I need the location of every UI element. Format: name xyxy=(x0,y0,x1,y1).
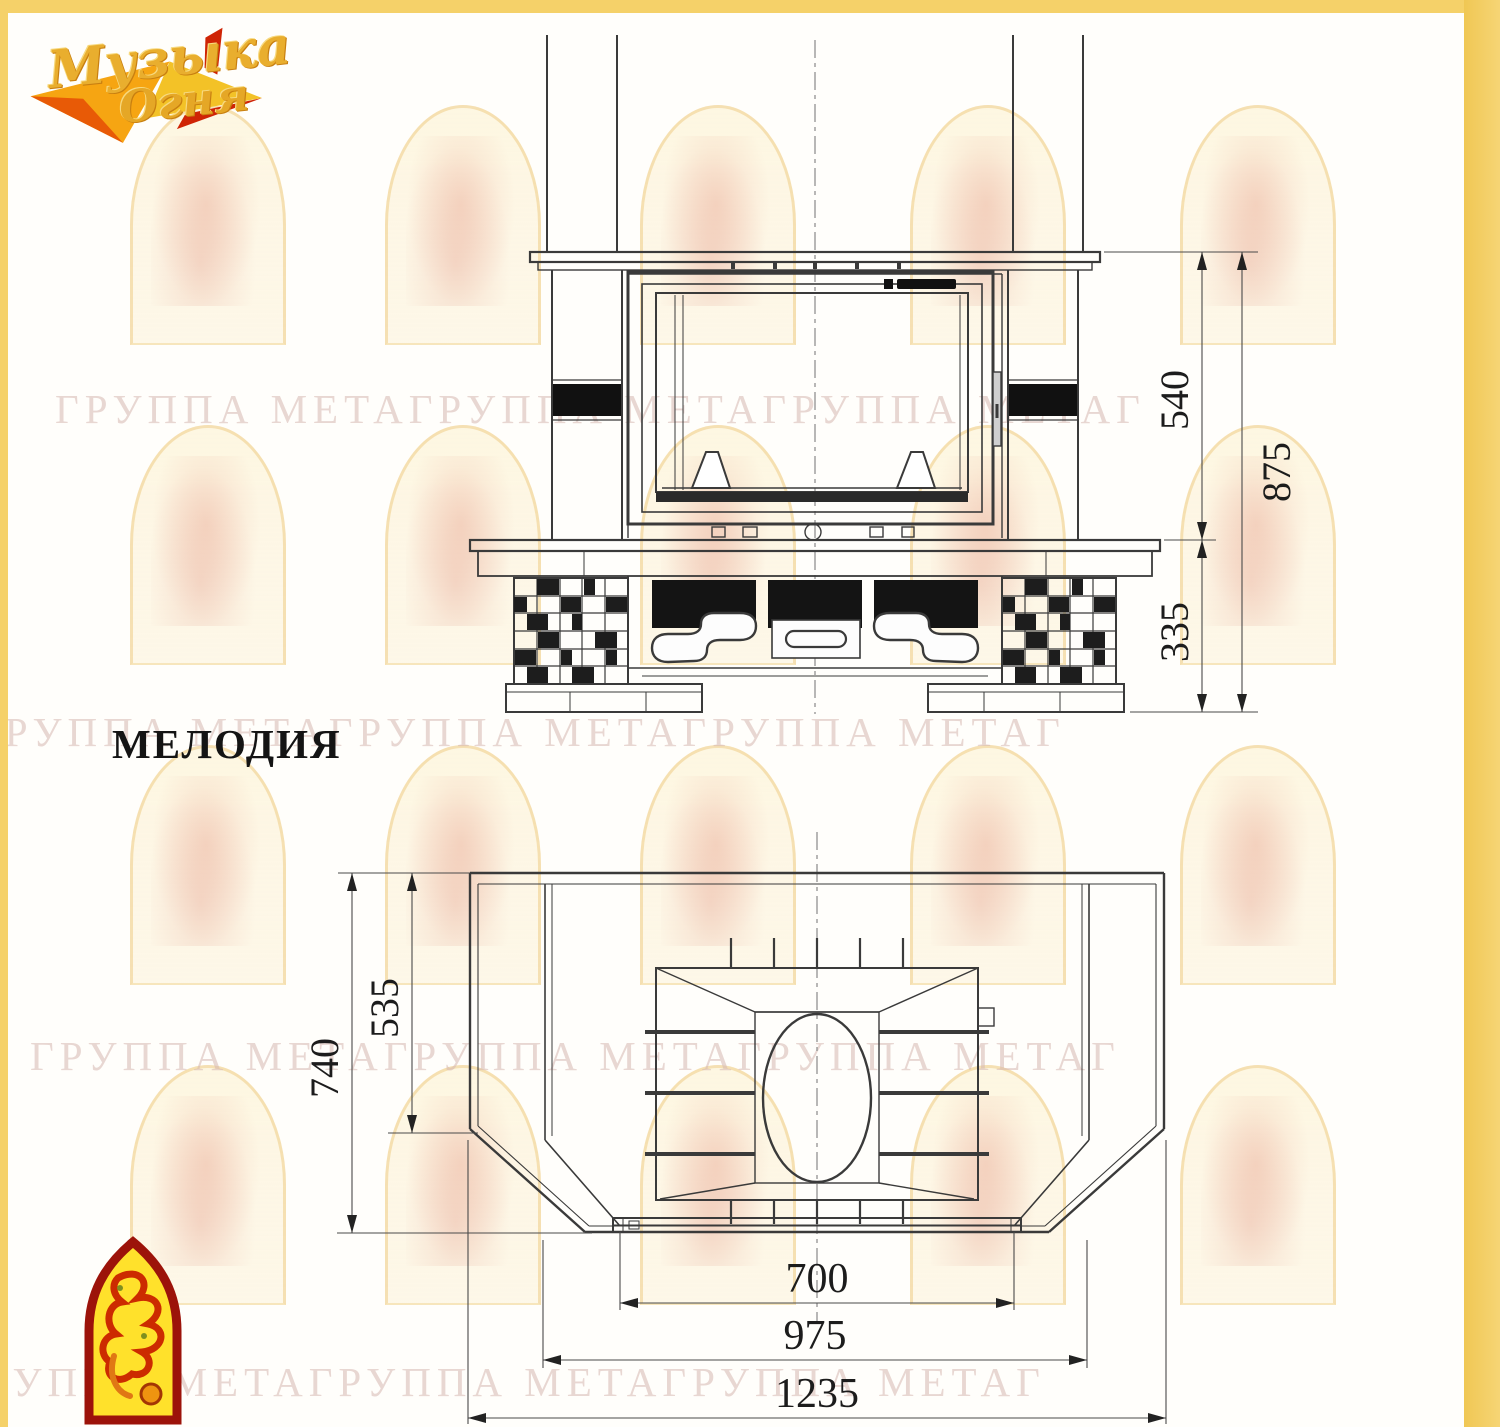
dim-total-width: 1235 xyxy=(775,1371,859,1417)
technical-drawing: 540 335 875 535 740 700 975 1235 xyxy=(0,0,1500,1427)
dim-base-height: 335 xyxy=(1152,602,1197,662)
dim-inner-depth: 535 xyxy=(362,978,407,1038)
dim-total-depth: 740 xyxy=(302,1038,347,1098)
plan-view xyxy=(470,832,1164,1324)
plan-dimensions xyxy=(337,873,1166,1424)
dim-total-height: 875 xyxy=(1254,442,1299,502)
dim-opening-width: 700 xyxy=(786,1256,849,1302)
fireplace-dimension-sheet: ГРУППА МЕТАГРУППА МЕТАГРУППА МЕТАГ ГРУПП… xyxy=(0,0,1500,1427)
front-view xyxy=(470,35,1160,714)
dim-inner-width: 975 xyxy=(784,1313,847,1359)
dim-firebox-height: 540 xyxy=(1152,370,1197,430)
